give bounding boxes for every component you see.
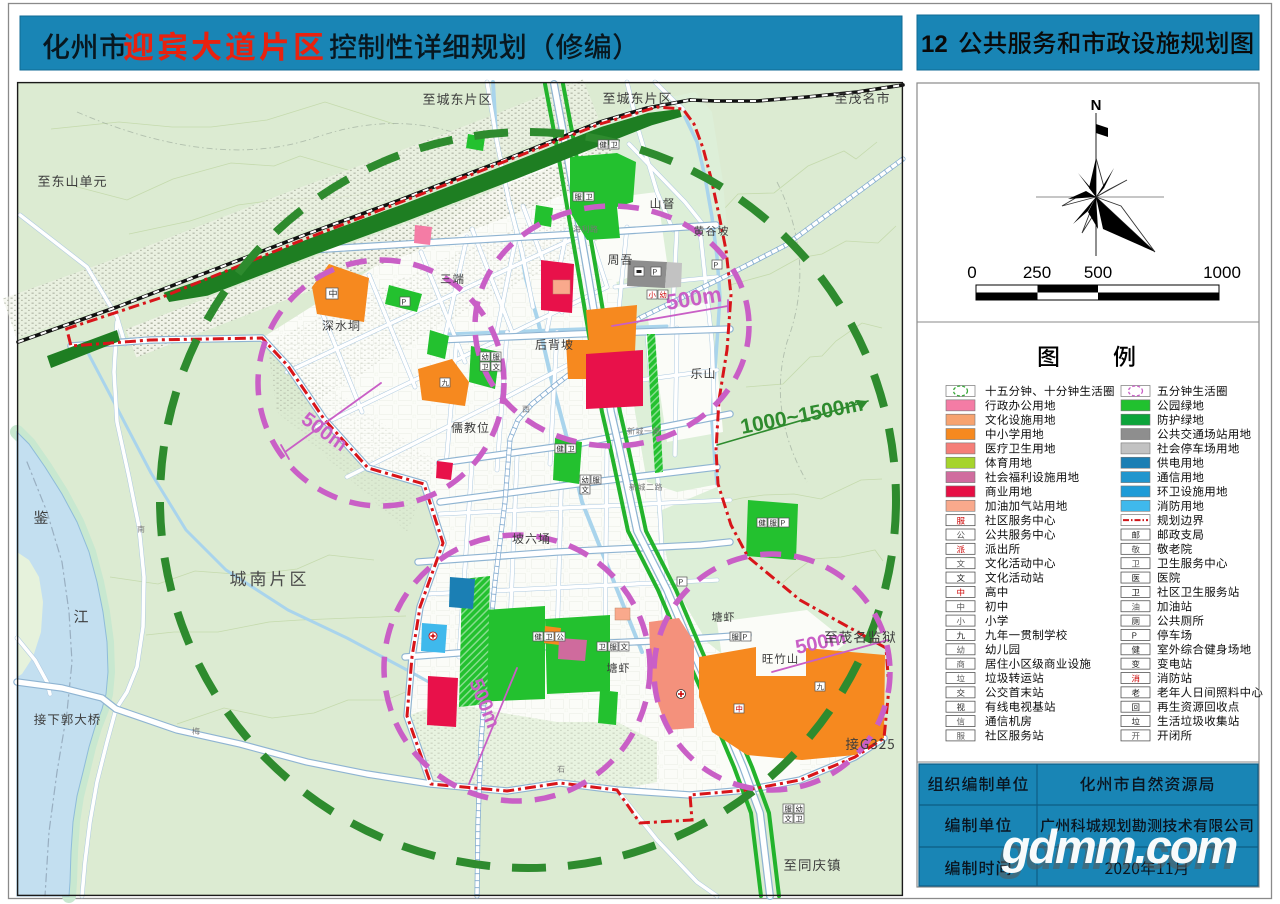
- svg-text:250: 250: [1023, 263, 1051, 282]
- svg-text:500: 500: [1084, 263, 1112, 282]
- svg-text:0: 0: [967, 263, 976, 282]
- svg-text:gdmm.com: gdmm.com: [1001, 820, 1237, 873]
- svg-text:12: 12: [921, 31, 948, 58]
- svg-text:1000: 1000: [1203, 263, 1241, 282]
- svg-text:N: N: [1091, 97, 1102, 114]
